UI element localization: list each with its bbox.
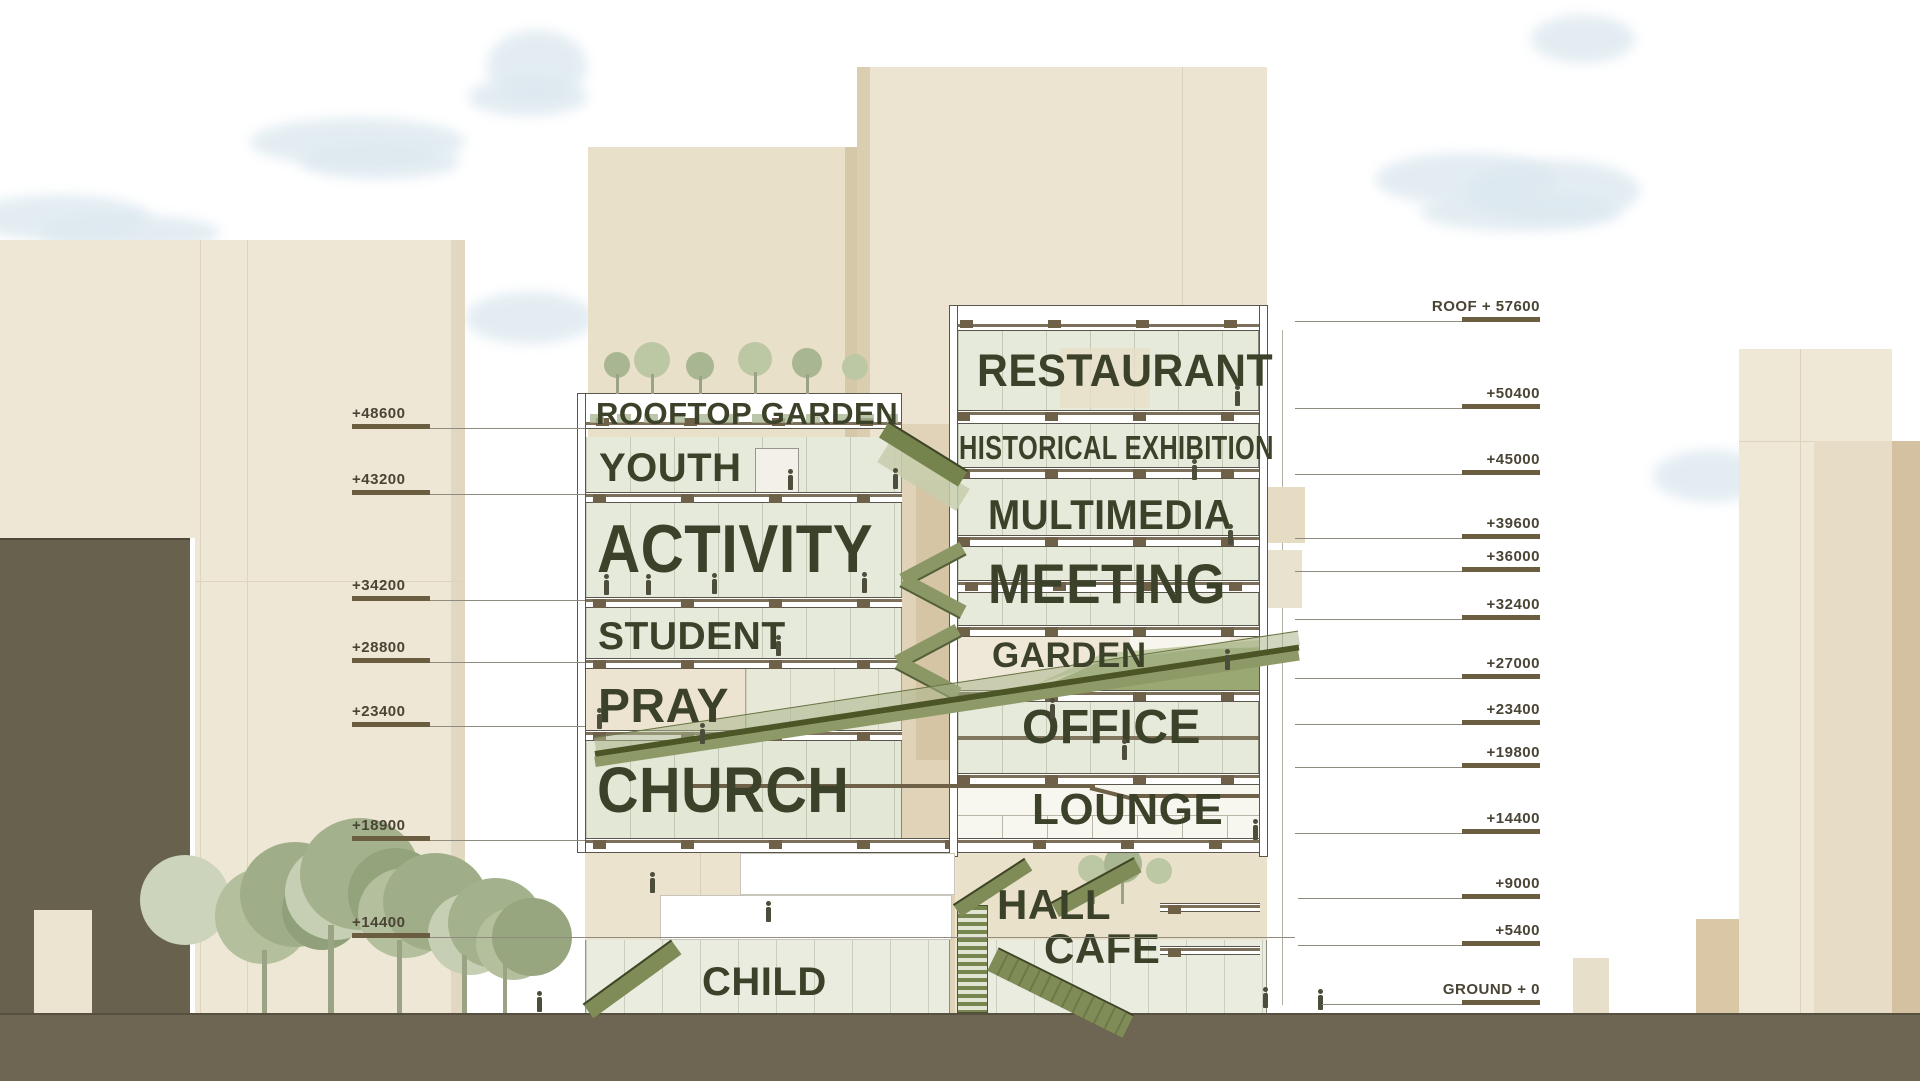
tree-trunk: [651, 374, 654, 394]
slab-stub: [1160, 903, 1260, 912]
floor-label-office: OFFICE: [1022, 704, 1201, 752]
elevation-bar: [1462, 720, 1540, 725]
person-silhouette: [862, 578, 867, 593]
floor-label-multimedia: MULTIMEDIA: [988, 494, 1232, 536]
balcony-block: [1267, 550, 1302, 608]
elevation-line: [430, 726, 585, 727]
tree-trunk: [699, 376, 702, 394]
base-slab: [585, 838, 1267, 853]
elevation-line: [430, 428, 585, 429]
background-building-small: [1573, 958, 1609, 1013]
floor-slab: [585, 658, 902, 669]
elevation-line: [1322, 1004, 1462, 1005]
person-silhouette: [1050, 704, 1055, 719]
elevation-line: [430, 937, 1295, 938]
tree-trunk: [616, 374, 619, 394]
elevation-bar: [352, 933, 430, 938]
person-silhouette: [1228, 530, 1233, 545]
elevation-line: [1295, 571, 1462, 572]
section-diagram: ROOFTOP GARDEN YOUTH ACTIVITY STUDENT PR…: [0, 0, 1920, 1081]
reference-line: [1282, 330, 1283, 1005]
elevation-label: +27000: [1382, 655, 1540, 672]
floor-label-youth: YOUTH: [599, 448, 742, 488]
person-silhouette: [1263, 993, 1268, 1008]
escalator: [957, 905, 988, 1013]
person-silhouette: [650, 878, 655, 893]
elevation-bar: [352, 424, 430, 429]
floor-label-hall: HALL: [997, 884, 1111, 926]
elevation-bar: [1462, 763, 1540, 768]
elevation-label: +48600: [352, 405, 405, 422]
elevation-label: +34200: [352, 577, 405, 594]
rooftop-tree-canopy: [842, 354, 868, 380]
elevation-line: [1295, 767, 1462, 768]
cloud: [465, 292, 595, 344]
background-building-small: [34, 910, 92, 1013]
elevation-label: +5400: [1382, 922, 1540, 939]
tree-trunk: [503, 960, 507, 1013]
tree-trunk: [1121, 880, 1124, 904]
floor-label-restaurant: RESTAURANT: [977, 348, 1273, 393]
elevation-line: [1295, 678, 1462, 679]
tree-trunk: [806, 374, 809, 394]
elevation-bar: [352, 836, 430, 841]
person-silhouette: [1192, 465, 1197, 480]
floor-label-child: CHILD: [702, 962, 827, 1002]
elevation-line: [1295, 474, 1462, 475]
cloud: [1420, 193, 1620, 231]
tree-canopy: [1146, 858, 1172, 884]
rooftop-tree-canopy: [634, 342, 670, 378]
elevation-label: +18900: [352, 817, 405, 834]
tower-edge-column: [949, 305, 958, 857]
tree-trunk: [397, 940, 402, 1013]
elevation-line: [1295, 538, 1462, 539]
floor-slab: [949, 410, 1267, 424]
floor-label-church: CHURCH: [597, 758, 849, 822]
elevation-bar: [1462, 674, 1540, 679]
elevation-bar: [1462, 567, 1540, 572]
person-silhouette: [597, 714, 602, 729]
elevation-bar: [352, 490, 430, 495]
elevation-bar: [1462, 894, 1540, 899]
elevation-bar: [1462, 317, 1540, 322]
person-silhouette: [893, 474, 898, 489]
building-seam: [1800, 349, 1801, 1013]
elevation-bar: [352, 722, 430, 727]
floor-label-lounge: LOUNGE: [1032, 788, 1223, 832]
ground: [0, 1013, 1920, 1081]
elevation-label: +9000: [1382, 875, 1540, 892]
person-silhouette: [1318, 995, 1323, 1010]
elevation-label: GROUND + 0: [1382, 981, 1540, 998]
person-silhouette: [646, 580, 651, 595]
elevation-bar: [1462, 615, 1540, 620]
roof-parapet: [949, 305, 1267, 331]
elevation-label: +23400: [352, 703, 405, 720]
floor-label-rooftop-garden: ROOFTOP GARDEN: [596, 398, 898, 429]
person-silhouette: [1122, 745, 1127, 760]
elevation-label: ROOF + 57600: [1382, 298, 1540, 315]
elevation-line: [1295, 321, 1462, 322]
floor-label-cafe: CAFE: [1044, 928, 1160, 970]
elevation-line: [430, 600, 585, 601]
mezzanine-volume: [740, 853, 955, 895]
tree-trunk: [328, 925, 334, 1013]
elevation-label: +50400: [1382, 385, 1540, 402]
elevation-bar: [1462, 941, 1540, 946]
cloud: [300, 145, 460, 179]
elevation-line: [1295, 408, 1462, 409]
cloud: [468, 78, 588, 116]
floor-label-student: STUDENT: [598, 617, 786, 656]
elevation-line: [430, 494, 585, 495]
elevation-label: +39600: [1382, 515, 1540, 532]
elevation-bar: [1462, 534, 1540, 539]
person-silhouette: [712, 579, 717, 594]
elevation-bar: [1462, 404, 1540, 409]
elevation-line: [1298, 945, 1462, 946]
tree-trunk: [462, 955, 467, 1013]
background-building-panel: [1814, 441, 1892, 1013]
elevation-line: [430, 840, 585, 841]
background-building-dark: [0, 538, 190, 1015]
floor-slab: [585, 492, 902, 503]
floor-label-meeting: MEETING: [988, 556, 1226, 612]
tree-trunk: [754, 372, 757, 394]
mezzanine-volume: [660, 895, 952, 940]
person-silhouette: [776, 641, 781, 656]
elevation-line: [430, 662, 585, 663]
elevation-line: [1295, 833, 1462, 834]
elevation-label: +36000: [1382, 548, 1540, 565]
background-building-edge: [1892, 441, 1920, 1013]
floor-label-pray: PRAY: [598, 683, 729, 731]
person-silhouette: [700, 729, 705, 744]
elevation-bar: [352, 596, 430, 601]
elevation-label: +14400: [1382, 810, 1540, 827]
elevation-line: [1295, 724, 1462, 725]
elevation-bar: [352, 658, 430, 663]
person-silhouette: [1225, 655, 1230, 670]
tower-edge-column: [577, 393, 586, 853]
elevation-label: +23400: [1382, 701, 1540, 718]
elevation-line: [1298, 898, 1462, 899]
floor-slab: [585, 597, 902, 608]
background-building-small: [1696, 919, 1739, 1013]
floor-label-garden: GARDEN: [992, 638, 1147, 673]
rooftop-tree-canopy: [738, 342, 772, 376]
cloud: [1531, 15, 1635, 63]
elevation-bar: [1462, 1000, 1540, 1005]
person-silhouette: [788, 475, 793, 490]
elevation-bar: [1462, 470, 1540, 475]
person-silhouette: [1235, 391, 1240, 406]
floor-label-exhibition: HISTORICAL EXHIBITION: [959, 431, 1274, 464]
person-silhouette: [1253, 825, 1258, 840]
elevation-label: +45000: [1382, 451, 1540, 468]
tree-trunk: [262, 950, 267, 1013]
elevation-bar: [1462, 829, 1540, 834]
person-silhouette: [537, 997, 542, 1012]
person-silhouette: [766, 907, 771, 922]
floor-slab: [949, 467, 1267, 479]
elevation-label: +14400: [352, 914, 405, 931]
slab-stub: [1160, 946, 1260, 955]
elevation-label: +19800: [1382, 744, 1540, 761]
elevation-label: +32400: [1382, 596, 1540, 613]
elevation-line: [1295, 619, 1462, 620]
elevation-label: +28800: [352, 639, 405, 656]
building-seam: [1182, 67, 1183, 305]
balcony-block: [1267, 487, 1305, 543]
person-silhouette: [604, 580, 609, 595]
elevation-label: +43200: [352, 471, 405, 488]
floor-label-activity: ACTIVITY: [597, 515, 873, 583]
